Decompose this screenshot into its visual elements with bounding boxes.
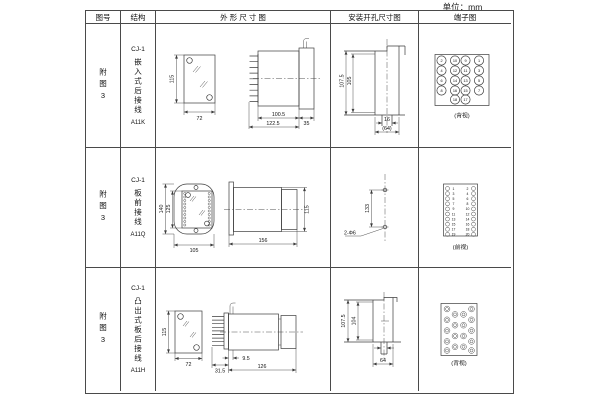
svg-text:8: 8 (466, 202, 468, 206)
front-view: 115 72 (169, 55, 215, 122)
dim-cutout-inner: 104 (352, 316, 358, 325)
structure-row2: CJ-1 板前接线 A11Q (121, 148, 156, 268)
dim-cutout-outer: 107.5 (340, 74, 346, 87)
svg-text:14: 14 (452, 78, 456, 82)
svg-text:2: 2 (466, 187, 468, 191)
model-label: CJ-1 (131, 46, 145, 53)
svg-text:9: 9 (452, 207, 454, 211)
terminal-diagram-row2: 12 34 56 78 910 1112 1314 1516 1718 1920… (419, 148, 511, 268)
dim-plate-height: 140 (159, 205, 165, 214)
dim-front-width: 72 (196, 116, 202, 122)
header-figure: 图号 (86, 11, 121, 24)
figure-no-row3: 附图3 (86, 268, 121, 391)
dim-cutout-width: 64 (380, 358, 386, 364)
outline-diagram-row1: 115 72 100.5 122.5 35 (156, 24, 331, 148)
dim-body-length: 126 (257, 364, 266, 370)
svg-text:17: 17 (451, 228, 455, 232)
dim-cutout-inner: 105 (347, 76, 353, 85)
svg-text:18: 18 (452, 97, 456, 101)
outline-diagram-row2: 140 125 105 156 115 (156, 148, 331, 268)
dim-cutout-width: (64) (382, 126, 392, 132)
svg-text:7: 7 (452, 202, 454, 206)
install-diagram-row2: 133 2-Φ6 (331, 148, 419, 268)
terminal-drawing-a11h: (背视) (420, 269, 511, 391)
header-terminal: 端子图 (419, 11, 511, 24)
svg-text:2: 2 (440, 58, 442, 62)
svg-text:11: 11 (463, 68, 467, 72)
svg-text:3: 3 (477, 68, 479, 72)
figure-no-text: 附图3 (98, 190, 109, 226)
dim-cutout-outer: 107.5 (341, 314, 347, 327)
svg-text:1: 1 (452, 187, 454, 191)
terminal-drawing-a11q: 12 34 56 78 910 1112 1314 1516 1718 1920… (420, 148, 511, 267)
svg-text:1: 1 (477, 58, 479, 62)
dim-slot-width: 16 (384, 117, 390, 123)
svg-text:8: 8 (440, 88, 442, 92)
svg-text:13: 13 (463, 78, 467, 82)
svg-text:4: 4 (440, 68, 442, 72)
figure-no-row2: 附图3 (86, 148, 121, 268)
cutout-drawing-a11k: 107.5 105 16 (64) (331, 25, 418, 147)
structure-code: A11Q (131, 232, 146, 238)
side-view: 31.5 9.5 126 (212, 303, 303, 375)
svg-text:5: 5 (477, 78, 479, 82)
figure-no-text: 附图3 (98, 312, 109, 348)
dim-window-height: 125 (166, 205, 172, 214)
dim-plate-gap: 9.5 (242, 356, 249, 362)
svg-text:5: 5 (452, 197, 454, 201)
outline-diagram-row3: 115 72 31.5 9.5 126 (156, 268, 331, 391)
svg-text:9: 9 (464, 58, 466, 62)
drill-drawing-a11q: 133 2-Φ6 (331, 148, 418, 267)
svg-text:20: 20 (465, 233, 469, 237)
dim-overall-length: 156 (258, 238, 267, 244)
svg-text:14: 14 (465, 217, 469, 221)
spec-table: 图号 结构 外 形 尺 寸 图 安装开孔尺寸图 端子图 附图3 CJ-1 嵌入式… (85, 10, 514, 394)
svg-text:13: 13 (451, 217, 455, 221)
terminal-drawing-a11k: 2 10 9 1 4 12 11 3 6 14 13 5 8 16 15 7 1… (420, 25, 511, 147)
svg-text:17: 17 (463, 97, 467, 101)
dim-body-length: 100.5 (271, 112, 284, 118)
side-view: 156 115 (224, 182, 311, 247)
outline-drawing-a11h: 115 72 31.5 9.5 126 (157, 269, 330, 391)
dim-pin-depth: 31.5 (214, 368, 224, 374)
terminal-pins: 12 34 56 78 910 1112 1314 1516 1718 1920 (445, 187, 475, 237)
view-label: (前视) (452, 243, 468, 251)
terminal-diagram-row3: (背视) (419, 268, 511, 391)
header-outline: 外 形 尺 寸 图 (156, 11, 331, 24)
svg-text:6: 6 (440, 78, 442, 82)
model-label: CJ-1 (131, 177, 145, 184)
svg-text:7: 7 (477, 88, 479, 92)
svg-text:10: 10 (465, 207, 469, 211)
svg-text:15: 15 (463, 88, 467, 92)
terminal-pins: 2 10 9 1 4 12 11 3 6 14 13 5 8 16 15 7 1… (436, 55, 483, 103)
svg-text:19: 19 (451, 233, 455, 237)
svg-text:12: 12 (452, 68, 456, 72)
structure-type: 嵌入式后接线 (133, 58, 144, 115)
svg-text:3: 3 (452, 192, 454, 196)
svg-text:6: 6 (466, 197, 468, 201)
dim-overall-length: 122.5 (266, 121, 279, 127)
svg-text:16: 16 (465, 223, 469, 227)
structure-type: 板前接线 (133, 189, 144, 227)
structure-code: A11H (131, 368, 146, 374)
dim-front-width: 72 (185, 362, 191, 368)
outline-drawing-a11q: 140 125 105 156 115 (157, 148, 330, 267)
structure-row3: CJ-1 凸出式板后接线 A11H (121, 268, 156, 391)
figure-no-row1: 附图3 (86, 24, 121, 148)
dim-front-height: 115 (162, 327, 168, 335)
svg-text:18: 18 (465, 228, 469, 232)
header-install: 安装开孔尺寸图 (331, 11, 419, 24)
terminal-pins (444, 306, 474, 353)
hole-callout: 2-Φ6 (344, 231, 356, 237)
dim-hole-spacing: 133 (365, 204, 371, 213)
view-label: (背视) (454, 111, 470, 119)
svg-text:12: 12 (465, 212, 469, 216)
install-diagram-row1: 107.5 105 16 (64) (331, 24, 419, 148)
model-label: CJ-1 (131, 285, 145, 292)
drill-drawing-a11h: 107.5 104 64 (331, 269, 418, 391)
front-view: 140 125 105 (159, 184, 214, 254)
structure-code: A11K (131, 120, 145, 126)
terminal-diagram-row1: 2 10 9 1 4 12 11 3 6 14 13 5 8 16 15 7 1… (419, 24, 511, 148)
outline-drawing-a11k: 115 72 100.5 122.5 35 (157, 25, 330, 147)
figure-no-text: 附图3 (98, 68, 109, 104)
svg-text:16: 16 (452, 88, 456, 92)
dim-flange-depth: 35 (303, 121, 309, 127)
svg-text:11: 11 (451, 212, 455, 216)
dim-body-height: 115 (304, 205, 310, 213)
dim-plate-width: 105 (189, 248, 198, 254)
front-view: 115 72 (162, 311, 202, 368)
svg-text:4: 4 (466, 192, 468, 196)
install-diagram-row3: 107.5 104 64 (331, 268, 419, 391)
header-structure: 结构 (121, 11, 156, 24)
svg-text:15: 15 (451, 223, 455, 227)
structure-row1: CJ-1 嵌入式后接线 A11K (121, 24, 156, 148)
view-label: (背视) (451, 359, 467, 367)
structure-type: 凸出式板后接线 (133, 297, 144, 364)
svg-text:10: 10 (452, 58, 456, 62)
dim-front-height: 115 (169, 74, 175, 82)
side-view: 100.5 122.5 35 (249, 38, 320, 129)
